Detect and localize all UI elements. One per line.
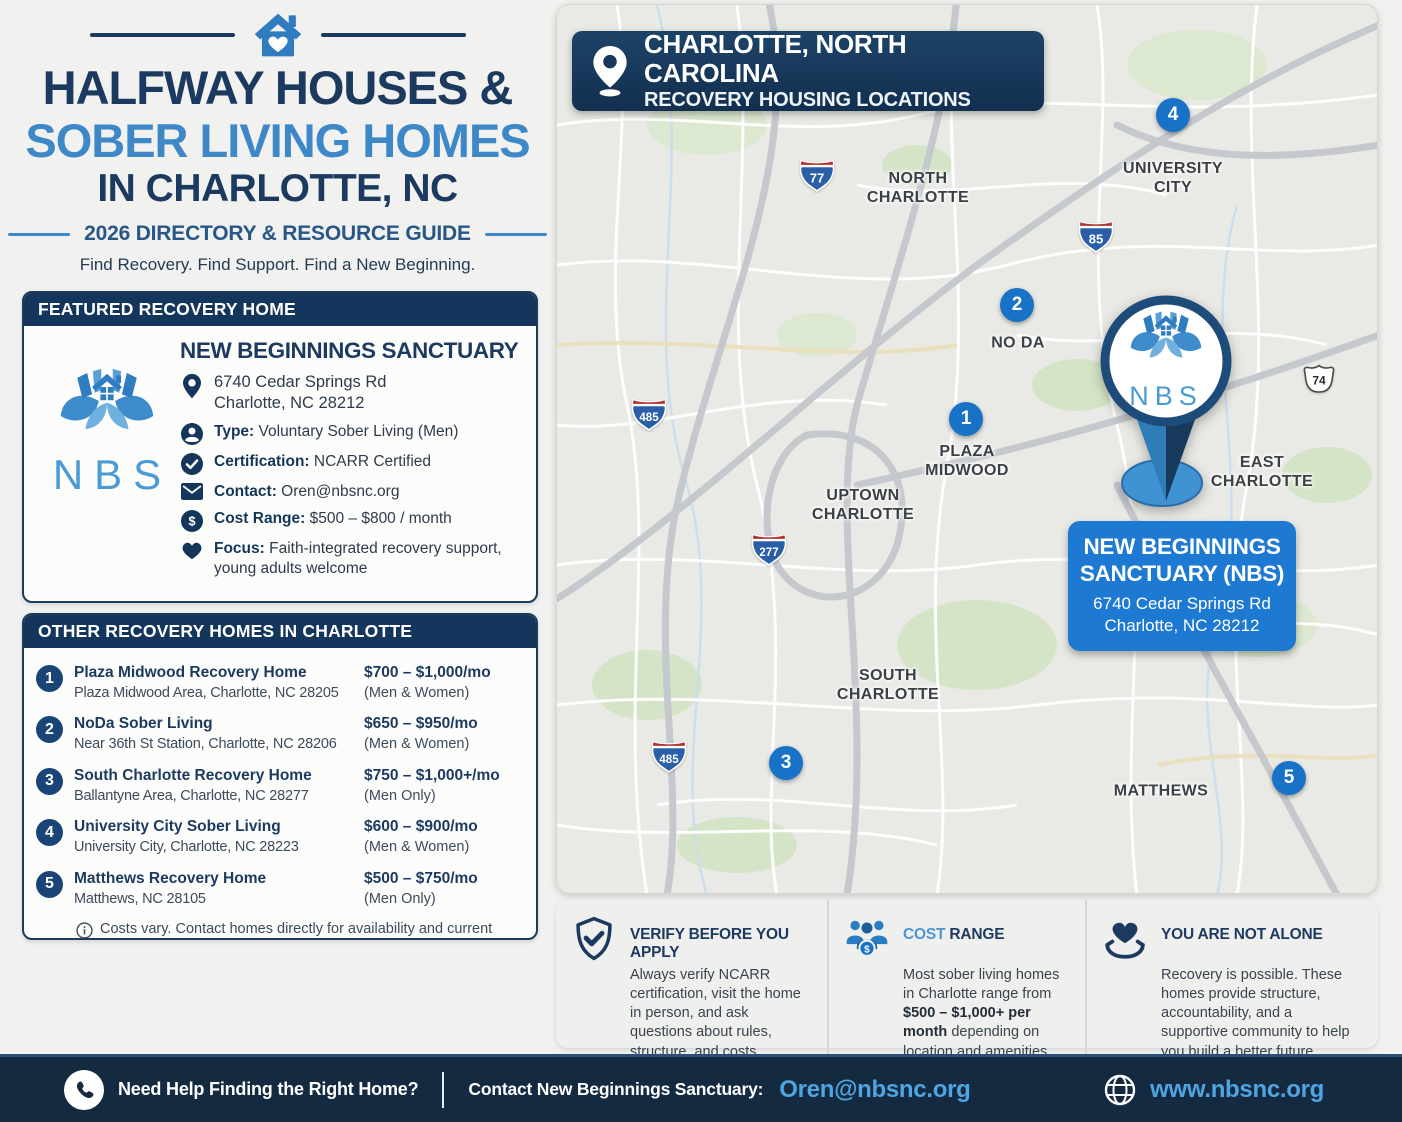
home-name: Plaza Midwood Recovery Home xyxy=(74,663,364,684)
check-circle-icon xyxy=(180,452,204,475)
shield-check-icon xyxy=(572,916,616,962)
location-pin-icon xyxy=(592,45,628,97)
title-divider xyxy=(0,10,555,60)
info-icon xyxy=(76,922,93,939)
other-homes-card: OTHER RECOVERY HOMES IN CHARLOTTE 1 Plaz… xyxy=(22,613,538,940)
area-label-north-charlotte: NORTHCHARLOTTE xyxy=(867,169,969,207)
home-location: Near 36th St Station, Charlotte, NC 2820… xyxy=(74,735,364,755)
svg-text:277: 277 xyxy=(759,547,778,559)
type-value: Voluntary Sober Living (Men) xyxy=(259,423,459,440)
home-details: University City Sober Living University … xyxy=(74,817,364,857)
home-occupancy: (Men & Women) xyxy=(364,838,522,858)
not-alone-body: Recovery is possible. These homes provid… xyxy=(1161,966,1362,1062)
interstate-77-shield: 77 xyxy=(797,158,837,192)
interstate-485-shield-upper: 485 xyxy=(629,397,669,431)
cost-range-row: $ Cost Range: $500 – $800 / month xyxy=(180,509,522,532)
home-number-badge: 2 xyxy=(36,716,63,743)
home-location: Plaza Midwood Area, Charlotte, NC 28205 xyxy=(74,684,364,704)
people-dollar-icon: $ xyxy=(845,916,889,962)
type-field: Type: Voluntary Sober Living (Men) xyxy=(214,422,458,442)
verify-body: Always verify NCARR certification, visit… xyxy=(630,966,811,1062)
map-marker-3[interactable]: 3 xyxy=(769,746,803,780)
home-number-badge: 4 xyxy=(36,819,63,846)
charlotte-map: NORTHCHARLOTTE UNIVERSITYCITY NO DA PLAZ… xyxy=(556,4,1378,894)
home-name: University City Sober Living xyxy=(74,817,364,838)
home-name: NoDa Sober Living xyxy=(74,714,364,735)
cost-info-box: $ COST RANGE Most sober living homes in … xyxy=(829,900,1087,1072)
callout-title: NEW BEGINNINGS SANCTUARY (NBS) xyxy=(1078,534,1286,587)
map-marker-4[interactable]: 4 xyxy=(1156,98,1190,132)
home-row-4: 4 University City Sober Living Universit… xyxy=(36,812,522,863)
map-title-badge: CHARLOTTE, NORTH CAROLINA RECOVERY HOUSI… xyxy=(572,31,1044,111)
envelope-icon xyxy=(180,482,204,500)
verify-info-box: VERIFY BEFORE YOU APPLY Always verify NC… xyxy=(556,900,829,1072)
svg-text:74: 74 xyxy=(1312,374,1326,388)
house-heart-icon xyxy=(249,10,307,60)
home-details: NoDa Sober Living Near 36th St Station, … xyxy=(74,714,364,754)
cost-title: COST RANGE xyxy=(903,916,1069,962)
subtitle-row: 2026 DIRECTORY & RESOURCE GUIDE xyxy=(0,222,555,246)
home-occupancy: (Men Only) xyxy=(364,787,522,807)
other-homes-header: OTHER RECOVERY HOMES IN CHARLOTTE xyxy=(24,615,536,648)
featured-recovery-home-card: FEATURED RECOVERY HOME NBS NEW BEGINNING… xyxy=(22,291,538,603)
area-label-matthews: MATTHEWS xyxy=(1114,781,1208,800)
home-name: Matthews Recovery Home xyxy=(74,869,364,890)
home-row-1: 1 Plaza Midwood Recovery Home Plaza Midw… xyxy=(36,658,522,709)
footer-website-link[interactable]: www.nbsnc.org xyxy=(1150,1076,1324,1104)
subtitle-dash xyxy=(485,233,547,236)
cost-range-field: Cost Range: $500 – $800 / month xyxy=(214,509,452,529)
footnote-text: Costs vary. Contact homes directly for a… xyxy=(100,921,522,940)
contact-email[interactable]: Oren@nbsnc.org xyxy=(281,483,399,500)
subtitle-text: 2026 DIRECTORY & RESOURCE GUIDE xyxy=(84,222,471,246)
cost-range-label: Cost Range: xyxy=(214,510,305,527)
home-price: $750 – $1,000+/mo xyxy=(364,766,522,787)
home-occupancy: (Men & Women) xyxy=(364,735,522,755)
globe-icon xyxy=(1102,1072,1138,1108)
home-row-3: 3 South Charlotte Recovery Home Ballanty… xyxy=(36,761,522,812)
home-number-badge: 5 xyxy=(36,871,63,898)
svg-text:NBS: NBS xyxy=(1129,381,1203,411)
svg-text:85: 85 xyxy=(1089,232,1103,247)
address-line-1: 6740 Cedar Springs Rd xyxy=(214,372,386,393)
hands-heart-icon xyxy=(1103,916,1147,962)
divider-line xyxy=(321,33,466,37)
home-pricing: $500 – $750/mo (Men Only) xyxy=(364,869,522,909)
infographic-page: HALFWAY HOUSES & SOBER LIVING HOMES IN C… xyxy=(0,0,1402,1122)
home-price: $500 – $750/mo xyxy=(364,869,522,890)
certification-label: Certification: xyxy=(214,453,310,470)
home-location: Ballantyne Area, Charlotte, NC 28277 xyxy=(74,787,364,807)
home-pricing: $750 – $1,000+/mo (Men Only) xyxy=(364,766,522,806)
address-row: 6740 Cedar Springs Rd Charlotte, NC 2821… xyxy=(180,372,522,415)
other-homes-body: 1 Plaza Midwood Recovery Home Plaza Midw… xyxy=(24,648,536,940)
featured-card-body: NBS NEW BEGINNINGS SANCTUARY 6740 Cedar … xyxy=(24,326,536,596)
home-details: Matthews Recovery Home Matthews, NC 2810… xyxy=(74,869,364,909)
featured-card-header: FEATURED RECOVERY HOME xyxy=(24,293,536,326)
footer-help-text: Need Help Finding the Right Home? xyxy=(118,1079,418,1100)
home-price: $600 – $900/mo xyxy=(364,817,522,838)
subtitle-dash xyxy=(8,233,70,236)
footer-bar: Need Help Finding the Right Home? Contac… xyxy=(0,1054,1402,1122)
interstate-85-shield: 85 xyxy=(1076,219,1116,253)
heart-icon xyxy=(180,539,204,560)
info-strip: VERIFY BEFORE YOU APPLY Always verify NC… xyxy=(556,900,1378,1048)
certification-value: NCARR Certified xyxy=(314,453,431,470)
page-title: HALFWAY HOUSES & SOBER LIVING HOMES IN C… xyxy=(0,62,555,212)
footer-divider xyxy=(442,1072,444,1108)
footer-email-link[interactable]: Oren@nbsnc.org xyxy=(779,1076,970,1104)
us-74-shield: 74 xyxy=(1302,364,1336,394)
home-details: Plaza Midwood Recovery Home Plaza Midwoo… xyxy=(74,663,364,703)
focus-row: Focus: Faith-integrated recovery support… xyxy=(180,539,522,579)
phone-icon xyxy=(64,1070,104,1110)
title-line-1: HALFWAY HOUSES & xyxy=(0,62,555,115)
area-label-noda: NO DA xyxy=(991,333,1045,352)
nbs-logo-text: NBS xyxy=(34,451,180,499)
home-location: University City, Charlotte, NC 28223 xyxy=(74,838,364,858)
certification-row: Certification: NCARR Certified xyxy=(180,452,522,475)
home-row-2: 2 NoDa Sober Living Near 36th St Station… xyxy=(36,709,522,760)
area-label-plaza-midwood: PLAZAMIDWOOD xyxy=(925,442,1009,480)
person-icon xyxy=(180,422,204,445)
contact-field[interactable]: Contact: Oren@nbsnc.org xyxy=(214,482,399,502)
not-alone-info-box: YOU ARE NOT ALONE Recovery is possible. … xyxy=(1087,900,1378,1072)
type-row: Type: Voluntary Sober Living (Men) xyxy=(180,422,522,445)
certification-field: Certification: NCARR Certified xyxy=(214,452,431,472)
focus-label: Focus: xyxy=(214,540,265,557)
title-line-2: SOBER LIVING HOMES xyxy=(0,115,555,168)
not-alone-title: YOU ARE NOT ALONE xyxy=(1161,916,1362,962)
type-label: Type: xyxy=(214,423,254,440)
home-number-badge: 3 xyxy=(36,768,63,795)
svg-text:485: 485 xyxy=(639,412,659,424)
badge-title: CHARLOTTE, NORTH CAROLINA xyxy=(644,30,1024,87)
area-label-uptown-charlotte: UPTOWNCHARLOTTE xyxy=(812,486,914,524)
tagline: Find Recovery. Find Support. Find a New … xyxy=(0,255,555,275)
svg-text:77: 77 xyxy=(810,171,824,186)
map-marker-5[interactable]: 5 xyxy=(1272,761,1306,795)
title-block: HALFWAY HOUSES & SOBER LIVING HOMES IN C… xyxy=(0,10,555,275)
interstate-485-shield-lower: 485 xyxy=(649,739,689,773)
costs-footnote: Costs vary. Contact homes directly for a… xyxy=(76,921,522,940)
cost-body: Most sober living homes in Charlotte ran… xyxy=(903,966,1069,1062)
featured-home-name: NEW BEGINNINGS SANCTUARY xyxy=(180,338,522,364)
featured-info: NEW BEGINNINGS SANCTUARY 6740 Cedar Spri… xyxy=(180,338,522,586)
map-marker-1[interactable]: 1 xyxy=(949,402,983,436)
home-price: $700 – $1,000/mo xyxy=(364,663,522,684)
home-number-badge: 1 xyxy=(36,665,63,692)
home-occupancy: (Men & Women) xyxy=(364,684,522,704)
area-label-university-city: UNIVERSITYCITY xyxy=(1123,159,1223,197)
nbs-map-callout[interactable]: NEW BEGINNINGS SANCTUARY (NBS) 6740 Ceda… xyxy=(1068,521,1296,651)
contact-row: Contact: Oren@nbsnc.org xyxy=(180,482,522,502)
svg-text:$: $ xyxy=(188,515,195,529)
address-line-2: Charlotte, NC 28212 xyxy=(214,393,386,414)
title-line-3: IN CHARLOTTE, NC xyxy=(0,167,555,212)
home-pricing: $600 – $900/mo (Men & Women) xyxy=(364,817,522,857)
home-pricing: $650 – $950/mo (Men & Women) xyxy=(364,714,522,754)
home-pricing: $700 – $1,000/mo (Men & Women) xyxy=(364,663,522,703)
divider-line xyxy=(90,33,235,37)
area-label-south-charlotte: SOUTHCHARLOTTE xyxy=(837,666,939,704)
featured-address: 6740 Cedar Springs Rd Charlotte, NC 2821… xyxy=(214,372,386,415)
home-details: South Charlotte Recovery Home Ballantyne… xyxy=(74,766,364,806)
home-row-5: 5 Matthews Recovery Home Matthews, NC 28… xyxy=(36,864,522,915)
callout-address: 6740 Cedar Springs Rd Charlotte, NC 2821… xyxy=(1078,593,1286,637)
nbs-lotus-icon xyxy=(57,368,157,444)
focus-field: Focus: Faith-integrated recovery support… xyxy=(214,539,522,579)
home-location: Matthews, NC 28105 xyxy=(74,890,364,910)
dollar-circle-icon: $ xyxy=(180,509,204,532)
interstate-277-shield: 277 xyxy=(749,532,789,566)
verify-title: VERIFY BEFORE YOU APPLY xyxy=(630,916,811,962)
map-marker-2[interactable]: 2 xyxy=(1000,288,1034,322)
nbs-map-pin[interactable]: NBS xyxy=(1086,289,1246,517)
svg-text:485: 485 xyxy=(659,754,679,766)
home-occupancy: (Men Only) xyxy=(364,890,522,910)
home-price: $650 – $950/mo xyxy=(364,714,522,735)
footer-contact-label: Contact New Beginnings Sanctuary: xyxy=(468,1079,763,1100)
home-name: South Charlotte Recovery Home xyxy=(74,766,364,787)
svg-text:$: $ xyxy=(864,945,870,956)
badge-text: CHARLOTTE, NORTH CAROLINA RECOVERY HOUSI… xyxy=(644,30,1024,112)
contact-label: Contact: xyxy=(214,483,277,500)
cost-range-value: $500 – $800 / month xyxy=(310,510,452,527)
nbs-logo: NBS xyxy=(34,338,180,586)
location-pin-icon xyxy=(180,372,204,399)
badge-subtitle: RECOVERY HOUSING LOCATIONS xyxy=(644,89,1024,112)
